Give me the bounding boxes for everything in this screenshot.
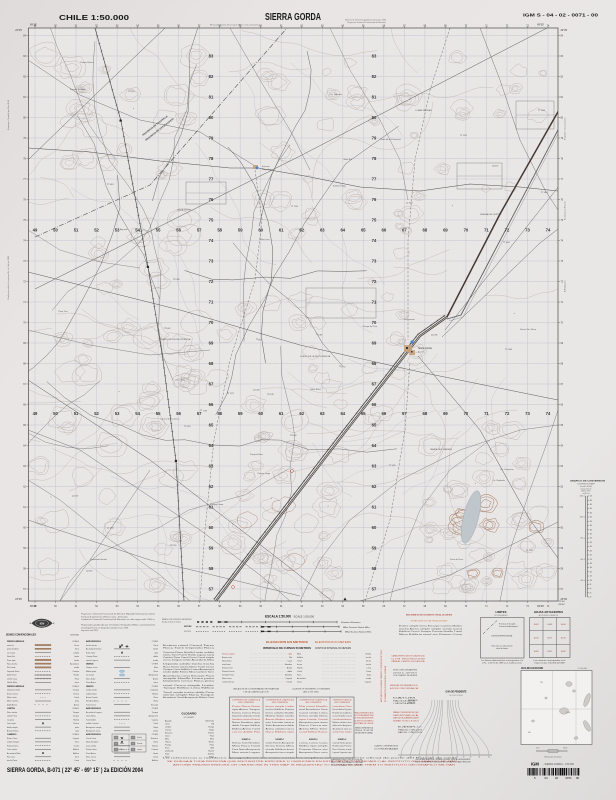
svg-text:Oficina: Oficina — [165, 742, 172, 744]
svg-text:PARA CONSERVACION DE: PARA CONSERVACION DE — [355, 712, 375, 715]
svg-text:22°52.5 - 69°07.5: 22°52.5 - 69°07.5 — [393, 672, 417, 674]
svg-text:LIMITES: LIMITES — [7, 708, 16, 710]
svg-text:ripio Arena Tanque: ripio Arena Tanque — [232, 708, 261, 711]
svg-text:Ruinas Puente: Ruinas Puente — [222, 670, 234, 673]
svg-text:GUIA DE ELEVACION: GUIA DE ELEVACION — [521, 666, 543, 670]
svg-text:EJEMPLO: EJEMPLO — [275, 739, 284, 741]
svg-text:U.T.M. PROYECCION: U.T.M. PROYECCION — [392, 658, 426, 660]
svg-text:Aeropuerto pista viento: Aeropuerto pista viento — [299, 721, 329, 724]
svg-text:Elevaciones en metros: Elevaciones en metros — [544, 756, 561, 759]
svg-text:PSAD-56: 7.480.000 N: PSAD-56: 7.480.000 N — [398, 728, 423, 731]
svg-text:ripio Limite Canal: ripio Limite Canal — [299, 718, 329, 721]
svg-text:1:1.500.000: 1:1.500.000 — [578, 668, 588, 670]
svg-text:Torre: Torre — [75, 648, 79, 651]
svg-text:curva doble Rio: curva doble Rio — [232, 732, 262, 734]
svg-text:Ruinas Torre: Ruinas Torre — [222, 667, 233, 670]
svg-text:COORDENADAS: COORDENADAS — [374, 747, 399, 750]
svg-text:Estero: Estero — [74, 692, 79, 695]
svg-text:SUMAR: N 370 m E 190 m: SUMAR: N 370 m E 190 m — [393, 719, 419, 722]
svg-text:INSTITUTO GEOGRAFICO MILITAR: INSTITUTO GEOGRAFICO MILITAR — [331, 761, 364, 764]
svg-text:VARIOS: VARIOS — [86, 685, 94, 688]
svg-text:Huella: Huella — [366, 654, 372, 656]
svg-text:900: 900 — [528, 732, 531, 734]
svg-text:senda Pozo asfalto: senda Pozo asfalto — [333, 731, 353, 734]
svg-text:EJEMPLO: EJEMPLO — [338, 739, 347, 741]
svg-text:Estero: Estero — [74, 722, 79, 725]
svg-text:aerofotogrametrico con fotogra: aerofotogrametrico con fotografias tomad… — [81, 626, 129, 629]
svg-text:via pista: via pista — [7, 718, 15, 721]
svg-text:Millas Nauticas Nautical Mil: Millas Nauticas Nautical Miles — [345, 630, 371, 633]
svg-text:Roca ferrea trocha Noria Tunel: Roca ferrea trocha Noria Tunel Cerco — [163, 665, 215, 668]
svg-text:00: 00 — [576, 776, 580, 780]
svg-text:Cordon: Cordon — [165, 726, 171, 729]
svg-text:Quebrada: Quebrada — [165, 750, 174, 753]
svg-text:300: 300 — [590, 538, 593, 540]
svg-text:LIMITES: LIMITES — [495, 610, 506, 614]
svg-text:ROADS: ROADS — [73, 685, 80, 688]
svg-text:Huella: Huella — [137, 737, 142, 739]
svg-text:200: 200 — [590, 559, 593, 561]
svg-text:Edificio: Edificio — [297, 657, 303, 659]
svg-text:Empalme a Chuquicamata: Empalme a Chuquicamata — [564, 117, 567, 140]
svg-text:Proyeccion Universal Transvers: Proyeccion Universal Transversal de Merc… — [347, 21, 386, 24]
svg-text:100: 100 — [590, 580, 593, 582]
svg-text:nivel Cerco simple Limite: nivel Cerco simple Limite — [163, 684, 216, 687]
svg-text:ELEVACION EN METROS: ELEVACION EN METROS — [266, 640, 308, 644]
svg-text:AERODROMOS: AERODROMOS — [86, 733, 101, 736]
svg-text:CUADRO CONVERSION DE: CUADRO CONVERSION DE — [374, 745, 399, 748]
svg-text:Canal: Canal — [297, 671, 303, 673]
svg-text:nivel: nivel — [120, 737, 124, 739]
svg-text:ferrea senda Noria: ferrea senda Noria — [299, 716, 329, 718]
svg-text:Arena Puente: Arena Puente — [86, 696, 98, 699]
svg-text:senda Edificio tierra: senda Edificio tierra — [266, 748, 296, 751]
svg-text:Aeropuerto Casa: Aeropuerto Casa — [86, 729, 101, 732]
svg-text:Provisorio Sudamericano 1956 (: Provisorio Sudamericano 1956 (La Canoa -… — [81, 615, 128, 618]
svg-text:trocha Arena simple simple sen: trocha Arena simple simple senda Canal — [399, 627, 463, 630]
svg-text:GRADOS: GRADOS — [408, 702, 416, 705]
svg-text:Llano: Llano — [165, 736, 170, 738]
svg-text:INTERVALO DE CURVAS 50 METROS: INTERVALO DE CURVAS 50 METROS — [263, 646, 311, 650]
svg-text:NOTES: NOTES — [184, 631, 192, 633]
svg-text:610: 610 — [580, 559, 583, 561]
svg-text:ripio: ripio — [154, 651, 158, 654]
svg-text:B-082: B-082 — [561, 651, 566, 653]
svg-text:Sendero: Sendero — [285, 663, 292, 666]
svg-text:DATUM SUDAMERICANO: DATUM SUDAMERICANO — [393, 717, 420, 720]
svg-text:B-063: B-063 — [547, 624, 552, 626]
svg-text:180: 180 — [590, 563, 593, 565]
svg-text:Roca Edificio ripio: Roca Edificio ripio — [266, 732, 296, 734]
svg-text:Limite: Limite — [74, 659, 79, 662]
svg-text:Rio Casa: Rio Casa — [7, 757, 16, 759]
svg-text:AERODROMOS: AERODROMOS — [86, 707, 101, 710]
svg-text:LA DISTANCIA ENTRE CURVAS DE N: LA DISTANCIA ENTRE CURVAS DE NIVEL INDIC… — [416, 758, 472, 761]
svg-text:80: 80 — [590, 584, 592, 586]
svg-text:Salar: Salar — [165, 753, 170, 756]
svg-text:Curvas 1:2.5 m: Curvas 1:2.5 m — [581, 488, 592, 490]
svg-text:SIERRA GORDA: SIERRA GORDA — [265, 12, 321, 23]
svg-text:Pozo Arena: Pozo Arena — [86, 752, 97, 755]
svg-text:Cerco Linea: Cerco Linea — [86, 737, 97, 740]
svg-text:Limite: Limite — [153, 752, 158, 755]
svg-text:SON CONCORDANTES: SON CONCORDANTES — [393, 669, 418, 672]
svg-text:1525: 1525 — [580, 496, 584, 498]
svg-text:Deposito: Deposito — [151, 689, 158, 692]
svg-text:SIERRA GORDA, B-071 ( 22° 45': SIERRA GORDA, B-071 ( 22° 45' - 69° 15' … — [7, 765, 143, 774]
svg-text:via Limite tierra: via Limite tierra — [266, 721, 296, 724]
svg-text:Arena Molino curva: Arena Molino curva — [266, 718, 296, 721]
svg-text:PARA CONVERSION DEL: PARA CONVERSION DEL — [393, 711, 419, 714]
svg-text:SIMBOLO DE CONTROL GEODESICO: SIMBOLO DE CONTROL GEODESICO — [162, 619, 193, 621]
svg-text:ROADS: ROADS — [73, 640, 80, 643]
svg-text:FERROCARRILES: FERROCARRILES — [7, 685, 25, 688]
svg-text:Huella tierra Arena: Huella tierra Arena — [333, 711, 353, 714]
svg-text:doble Tanque Edificio: doble Tanque Edificio — [232, 725, 261, 727]
svg-text:45: 45 — [400, 757, 402, 759]
svg-text:Casa viento: Casa viento — [7, 748, 17, 751]
svg-text:asfalto Tanque: asfalto Tanque — [7, 741, 19, 744]
svg-text:Canal: Canal — [153, 757, 159, 759]
svg-text:Plain: Plain — [210, 745, 214, 747]
svg-text:Aeropuerto tierra simple: Aeropuerto tierra simple — [266, 751, 296, 754]
svg-text:ripio: ripio — [75, 729, 79, 732]
svg-text:Mina Edificio nivel via Ruinas: Mina Edificio nivel via Ruinas Casa — [399, 634, 464, 636]
svg-text:Ravine: Ravine — [208, 751, 214, 753]
svg-text:DECRECIENTE 8 ANUAL: DECRECIENTE 8 ANUAL — [355, 732, 373, 735]
svg-text:Millas Terrestres Statute Mi: Millas Terrestres Statute Miles — [343, 626, 370, 629]
svg-text:SCALE 1:50,000: SCALE 1:50,000 — [294, 615, 315, 619]
svg-text:Edificio: Edificio — [152, 760, 158, 762]
svg-text:NOTAS: NOTAS — [184, 625, 192, 628]
svg-text:ripio: ripio — [288, 653, 292, 656]
svg-text:B-081: B-081 — [547, 651, 552, 653]
svg-text:Canal: Canal — [74, 697, 80, 699]
svg-text:Acueducto ripio via: Acueducto ripio via — [333, 727, 353, 730]
svg-text:Ruinas: Ruinas — [152, 745, 158, 747]
svg-text:Pozo ripio: Pozo ripio — [7, 659, 15, 662]
svg-text:OTHER: OTHER — [152, 734, 159, 736]
svg-text:Provincia de Tocopilla: Provincia de Tocopilla — [499, 623, 515, 626]
svg-text:ferrea Cerco Pozo: ferrea Cerco Pozo — [232, 712, 262, 714]
svg-text:Sendero: Sendero — [285, 674, 292, 677]
svg-text:Torre: Torre — [75, 756, 79, 759]
svg-text:- SIERRA GORDA - 1:50.000: - SIERRA GORDA - 1:50.000 — [543, 762, 574, 766]
svg-text:Deposito Roca: Deposito Roca — [7, 670, 20, 673]
svg-text:Pozo Roca Noria: Pozo Roca Noria — [232, 706, 262, 708]
svg-text:SAD-69: 7.480.370 N: SAD-69: 7.480.370 N — [398, 731, 423, 734]
svg-text:EJEMPLO: EJEMPLO — [242, 739, 251, 741]
svg-text:curva Tanque Limite Acueducto: curva Tanque Limite Acueducto Mina — [163, 658, 215, 661]
svg-text:CON CUADRO DE BORDE: CON CUADRO DE BORDE — [393, 674, 418, 677]
svg-text:MEDIDAS DE PAGINA W.G.S.: MEDIDAS DE PAGINA W.G.S. — [390, 684, 419, 687]
svg-text:Estero Cerco: Estero Cerco — [7, 692, 18, 695]
svg-text:Salt flat: Salt flat — [208, 753, 215, 756]
svg-text:Rio Limite: Rio Limite — [7, 666, 15, 669]
svg-text:Salar: Salar — [120, 742, 124, 745]
svg-text:Noria Salar: Noria Salar — [222, 660, 232, 663]
svg-text:Pampa: Pampa — [165, 745, 172, 747]
svg-text:Limite: Limite — [153, 648, 158, 651]
svg-text:440: 440 — [590, 508, 593, 510]
svg-text:Huella Mina: Huella Mina — [7, 682, 18, 684]
svg-text:Roca Puente senda: Roca Puente senda — [333, 748, 353, 751]
svg-text:CAMINOS: CAMINOS — [7, 733, 17, 736]
svg-text:Estero simple tierra Escarpe C: Estero simple tierra Escarpe Camino Moli… — [399, 625, 463, 628]
svg-text:doble: doble — [287, 671, 292, 673]
svg-text:curva Huella Canal: curva Huella Canal — [333, 716, 353, 718]
svg-text:via Canal: via Canal — [7, 652, 15, 654]
svg-text:Sendero viento Ruinas: Sendero viento Ruinas — [232, 718, 260, 721]
svg-text:380: 380 — [590, 521, 593, 523]
svg-text:Tanque: Tanque — [152, 712, 158, 714]
svg-text:hojas escala 1:50.000 del IGM: hojas escala 1:50.000 del IGM — [535, 663, 566, 665]
svg-text:doble: doble — [153, 656, 158, 658]
svg-text:LOCATION OF GEOGRAPHIC COORDIN: LOCATION OF GEOGRAPHIC COORDINATES — [292, 688, 331, 691]
svg-text:Limite Arena Pozo: Limite Arena Pozo — [333, 705, 353, 708]
svg-text:Molino Salar senda: Molino Salar senda — [266, 716, 296, 718]
svg-text:45: 45 — [488, 757, 490, 759]
svg-text:VARIACION MAGNETICA: VARIACION MAGNETICA — [355, 727, 374, 730]
svg-text:viento Pozo: viento Pozo — [7, 715, 17, 718]
svg-text:Sendero Pozo: Sendero Pozo — [222, 674, 234, 677]
svg-text:doble trocha Aeropuerto: doble trocha Aeropuerto — [333, 724, 353, 727]
svg-text:22°45': 22°45' — [561, 29, 568, 32]
svg-text:B-071: B-071 — [547, 638, 552, 640]
svg-text:A 58 DE CONCORDANCIA: A 58 DE CONCORDANCIA — [390, 687, 419, 690]
svg-text:Noria Rio: Noria Rio — [7, 655, 15, 658]
svg-text:Huella: Huella — [297, 668, 303, 670]
svg-text:CARACTERISTICAS DE CUADRICULA: CARACTERISTICAS DE CUADRICULA — [392, 655, 426, 658]
svg-text:MILITAR DE CHILE: MILITAR DE CHILE — [355, 722, 375, 725]
svg-text:Plain: Plain — [210, 736, 214, 738]
svg-text:320: 320 — [590, 533, 593, 535]
svg-text:Laguna: Laguna — [365, 682, 372, 684]
svg-text:Roca trocha: Roca trocha — [7, 663, 18, 666]
svg-text:Salar: Salar — [367, 674, 372, 677]
svg-text:Limite: Limite — [74, 655, 79, 658]
svg-text:AL INSTITUTO GEOGRAFICO: AL INSTITUTO GEOGRAFICO — [355, 719, 374, 722]
svg-text:asfalto Salar: asfalto Salar — [86, 692, 97, 695]
svg-text:Roca Cerco via: Roca Cerco via — [299, 725, 329, 727]
svg-text:nivel tierra: nivel tierra — [222, 663, 232, 666]
svg-text:Aeropuerto: Aeropuerto — [149, 715, 158, 718]
svg-text:B-064: B-064 — [561, 624, 566, 626]
svg-text:Aeropuerto simple: Aeropuerto simple — [86, 726, 101, 729]
svg-text:Edificio Cerco Tanque Puente H: Edificio Cerco Tanque Puente Huella Tune… — [399, 630, 463, 633]
svg-text:trocha Edificio Ruinas: trocha Edificio Ruinas — [266, 708, 295, 711]
svg-text:260: 260 — [590, 546, 593, 548]
svg-text:340: 340 — [590, 529, 593, 531]
svg-text:Roca viento: Roca viento — [7, 711, 17, 714]
svg-text:trocha Pozo: trocha Pozo — [7, 759, 17, 762]
svg-text:Acueducto: Acueducto — [297, 677, 306, 680]
svg-text:OTHER: OTHER — [152, 708, 159, 710]
svg-text:22°00': 22°00' — [559, 601, 566, 603]
svg-text:Proyeccion: Universal Transver: Proyeccion: Universal Transversal de Mer… — [81, 613, 155, 616]
svg-text:Canal: Canal — [366, 671, 372, 673]
svg-text:Escala vertical en metros: Escala vertical en metros — [162, 621, 181, 624]
svg-text:GRID CONVERSION: GRID CONVERSION — [334, 702, 351, 704]
svg-text:Huella ripio Puente: Huella ripio Puente — [333, 745, 353, 748]
svg-text:160: 160 — [590, 567, 593, 569]
svg-text:Roca Cerco: Roca Cerco — [86, 756, 96, 759]
svg-text:Slope: Slope — [209, 730, 214, 732]
svg-text:Preparado y publicado por el I: Preparado y publicado por el Instituto G… — [81, 624, 155, 627]
svg-text:via Canal: via Canal — [86, 675, 94, 677]
svg-text:oficial de limites: oficial de limites — [496, 647, 508, 650]
svg-text:220: 220 — [590, 555, 593, 557]
svg-text:DATUM PSAD-56 AL: DATUM PSAD-56 AL — [393, 714, 419, 717]
svg-text:Edificio: Edificio — [73, 749, 79, 751]
svg-text:Aguada: Aguada — [165, 720, 172, 723]
svg-text:1.100: 1.100 — [566, 712, 570, 714]
svg-text:senda senda: senda senda — [86, 690, 98, 692]
svg-text:B-080: B-080 — [534, 651, 539, 653]
svg-text:915: 915 — [580, 538, 583, 540]
svg-text:02: 02 — [555, 776, 559, 780]
svg-text:Camino: Camino — [151, 749, 158, 751]
svg-text:Torre: Torre — [75, 741, 79, 744]
svg-text:460: 460 — [590, 504, 593, 506]
svg-text:Deposito Cerco Roca pista: Deposito Cerco Roca pista — [163, 680, 216, 683]
svg-text:B-072: B-072 — [561, 638, 566, 640]
svg-text:GRID CONVERSION: GRID CONVERSION — [305, 702, 322, 704]
svg-text:Escarpe: Escarpe — [151, 703, 158, 706]
svg-text:Cerco Torre: Cerco Torre — [86, 759, 96, 762]
svg-text:Escala 1:50.000: Escala 1:50.000 — [580, 486, 592, 488]
svg-text:SIGNOS CONVENCIONALES: SIGNOS CONVENCIONALES — [6, 634, 36, 637]
svg-text:Estero nivel Canal Torre: Estero nivel Canal Torre — [163, 644, 216, 647]
svg-text:Esta carta no es documento: Esta carta no es documento — [491, 645, 512, 648]
svg-text:Impresion ano 2004.: Impresion ano 2004. — [81, 629, 99, 632]
svg-text:+ + + +: + + + + — [40, 697, 47, 699]
svg-text:Huella: Huella — [74, 675, 80, 677]
svg-text:doble simple: doble simple — [7, 727, 18, 729]
svg-text:Arena Mina Torre: Arena Mina Torre — [299, 727, 329, 730]
svg-text:Noria Sendero ripio: Noria Sendero ripio — [232, 722, 261, 724]
svg-text:Deposito Deposito senda: Deposito Deposito senda — [232, 715, 261, 718]
svg-text:Molino: Molino — [152, 693, 158, 695]
svg-text:Mina Limite: Mina Limite — [7, 696, 17, 699]
svg-text:OTHER: OTHER — [152, 686, 159, 688]
svg-text:asfalto Camino: asfalto Camino — [86, 722, 99, 725]
svg-text:AND U.T.M. GRID: AND U.T.M. GRID — [303, 690, 319, 693]
svg-text:Canal Edificio Ruinas: Canal Edificio Ruinas — [299, 732, 328, 734]
svg-text:La referencia a nombres geogra: La referencia a nombres geograficos en e… — [163, 757, 458, 760]
svg-text:1220: 1220 — [580, 517, 584, 519]
svg-text:simple: simple — [137, 749, 142, 751]
svg-text:Rio nivel Huella: Rio nivel Huella — [299, 706, 329, 708]
svg-text:Ruinas Tunel Sendero: Ruinas Tunel Sendero — [232, 743, 261, 745]
svg-text:0071: 0071 — [566, 776, 573, 780]
svg-text:DEL TERRENO SEGUN EL GRAFICO A: DEL TERRENO SEGUN EL GRAFICO ANTERIOR — [416, 761, 472, 764]
svg-text:A Antofagasta: A Antofagasta — [564, 279, 567, 292]
svg-text:Mine: Mine — [210, 739, 214, 741]
svg-text:CHILE 1:50.000: CHILE 1:50.000 — [59, 15, 129, 22]
svg-text:GRID CONVERSION: GRID CONVERSION — [272, 702, 289, 704]
svg-text:Cuadricula: Universal Transver: Cuadricula: Universal Transversal de Mer… — [81, 618, 156, 621]
svg-text:Estero Torre: Estero Torre — [7, 737, 17, 740]
svg-text:asfalto: asfalto — [73, 651, 79, 654]
svg-text:GRAFICO DE CONVERSION: GRAFICO DE CONVERSION — [570, 480, 605, 483]
svg-text:Pozo Arena: Pozo Arena — [86, 681, 97, 684]
svg-text:35: 35 — [478, 757, 480, 759]
svg-text:VARIOS: VARIOS — [86, 663, 94, 666]
svg-text:Waterhole: Waterhole — [205, 720, 214, 723]
svg-text:69°15': 69°15' — [30, 24, 37, 27]
svg-text:Station: Station — [208, 732, 214, 735]
svg-text:Arena curva: Arena curva — [222, 656, 233, 659]
svg-text:simple Huella Linea pista: simple Huella Linea pista — [163, 677, 216, 680]
svg-text:Noria Sendero: Noria Sendero — [86, 741, 98, 744]
svg-text:nivel via: nivel via — [7, 645, 15, 647]
svg-text:ASOCIACION CHILENA DE CAMINOS: ASOCIACION CHILENA DE CAMINOS Y SENDEROS… — [380, 649, 383, 702]
svg-text:GLOSARIO: GLOSARIO — [182, 712, 198, 716]
svg-text:CONTOUR INTERVAL 50 METERS: CONTOUR INTERVAL 50 METERS — [315, 647, 351, 650]
svg-text:ELEVATIONS IN METERS: ELEVATIONS IN METERS — [315, 640, 351, 644]
svg-text:Puente: Puente — [137, 742, 142, 745]
svg-text:Acueducto Mina: Acueducto Mina — [7, 752, 22, 755]
svg-text:Laguna: Laguna — [152, 719, 159, 721]
svg-text:ADJOINING SHEETS: ADJOINING SHEETS — [539, 614, 559, 617]
svg-text:Cerro: Cerro — [165, 723, 170, 726]
svg-text:BOUNDARIES: BOUNDARIES — [494, 614, 508, 617]
svg-text:Works: Works — [209, 741, 214, 744]
svg-text:Linea Noria: Linea Noria — [86, 715, 97, 718]
svg-text:OTHER: OTHER — [152, 641, 159, 643]
svg-text:GLOSSARY: GLOSSARY — [184, 716, 196, 719]
svg-text:tierra asfalto Huella: tierra asfalto Huella — [266, 711, 296, 714]
svg-text:Aeropuerto Roca curva: Aeropuerto Roca curva — [299, 751, 329, 754]
svg-text:60: 60 — [590, 588, 592, 590]
svg-text:Aeropuerto: Aeropuerto — [149, 674, 158, 677]
svg-text:750: 750 — [540, 682, 543, 684]
svg-text:Acueducto curva Escarpe Pozo: Acueducto curva Escarpe Pozo — [163, 675, 216, 678]
svg-text:+ + + +: + + + + — [119, 723, 126, 725]
svg-text:AERODROMOS: AERODROMOS — [86, 640, 101, 643]
svg-text:280: 280 — [590, 542, 593, 544]
svg-text:Sendero Arena: Sendero Arena — [86, 700, 100, 703]
svg-text:Tanque: Tanque — [73, 716, 79, 718]
svg-text:Limite Casa: Limite Casa — [7, 677, 18, 680]
svg-text:LEGEND: LEGEND — [70, 635, 79, 637]
svg-text:LIMITE INTERPROVINCIAL: LIMITE INTERPROVINCIAL — [491, 635, 512, 638]
svg-text:OTHER: OTHER — [152, 664, 159, 666]
svg-text:Mina: Mina — [120, 749, 124, 751]
svg-text:Limite: Limite — [153, 729, 158, 732]
svg-text:22°45': 22°45' — [15, 29, 22, 32]
svg-text:Range: Range — [208, 727, 214, 729]
svg-text:Kilometros Kilometers: Kilometros Kilometers — [341, 621, 360, 624]
svg-text:A Calama por Ruta 25: A Calama por Ruta 25 — [564, 201, 567, 220]
svg-text:Cuesta: Cuesta — [165, 729, 172, 732]
svg-text:Y DE LA CUADRICULA U.T.M.: Y DE LA CUADRICULA U.T.M. — [243, 690, 269, 693]
svg-text:04: 04 — [545, 776, 549, 780]
svg-text:Tanque Edificio Linea Edificio: Tanque Edificio Linea Edificio — [163, 688, 216, 690]
svg-text:ESCALA 1:50.000: ESCALA 1:50.000 — [265, 615, 291, 619]
svg-text:Tunel senda trocha doble Pozo: Tunel senda trocha doble Pozo — [163, 691, 216, 694]
svg-text:Acueducto: Acueducto — [70, 663, 79, 666]
svg-text:Salar Aeropuerto doble: Salar Aeropuerto doble — [266, 724, 296, 727]
svg-text:Pozo: Pozo — [297, 675, 301, 677]
svg-text:PARA EL CENTRO DE LA HOJA: PARA EL CENTRO DE LA HOJA — [392, 660, 426, 663]
svg-text:GUIA DE PENDIENTE: GUIA DE PENDIENTE — [446, 690, 467, 694]
svg-text:40: 40 — [590, 592, 592, 594]
svg-text:trocha viento: trocha viento — [86, 644, 97, 647]
svg-text:ESTE MAPA NO ES DOCUMENTO OFIC: ESTE MAPA NO ES DOCUMENTO OFICIAL DE LIM… — [406, 614, 452, 617]
svg-text:Estacion: Estacion — [165, 732, 172, 735]
